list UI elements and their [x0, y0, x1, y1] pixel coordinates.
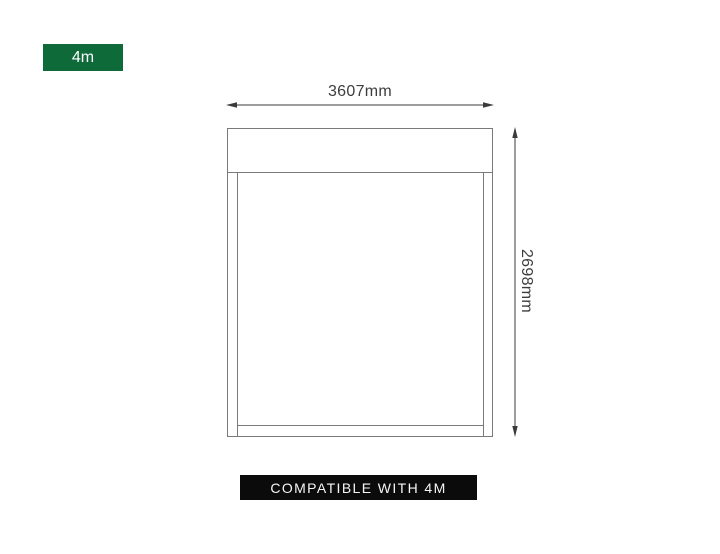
size-badge: 4m: [43, 44, 123, 71]
width-dimension-arrow-icon: [226, 100, 494, 110]
frame-top-box-line: [227, 172, 493, 173]
width-dimension-label: 3607mm: [260, 83, 460, 101]
compatibility-badge-label: COMPATIBLE WITH 4M: [270, 481, 446, 495]
size-badge-label: 4m: [72, 50, 94, 66]
frame-outline: [227, 128, 493, 437]
frame-bottom-bar-line: [238, 425, 483, 426]
compatibility-badge: COMPATIBLE WITH 4M: [240, 475, 477, 500]
frame-right-rail-line: [483, 172, 484, 437]
height-dimension-label: 2698mm: [517, 249, 535, 313]
frame-left-rail-line: [237, 172, 238, 437]
product-dimension-diagram: 4m 3607mm 2698mm COMPATIBLE WITH 4M: [0, 0, 720, 554]
